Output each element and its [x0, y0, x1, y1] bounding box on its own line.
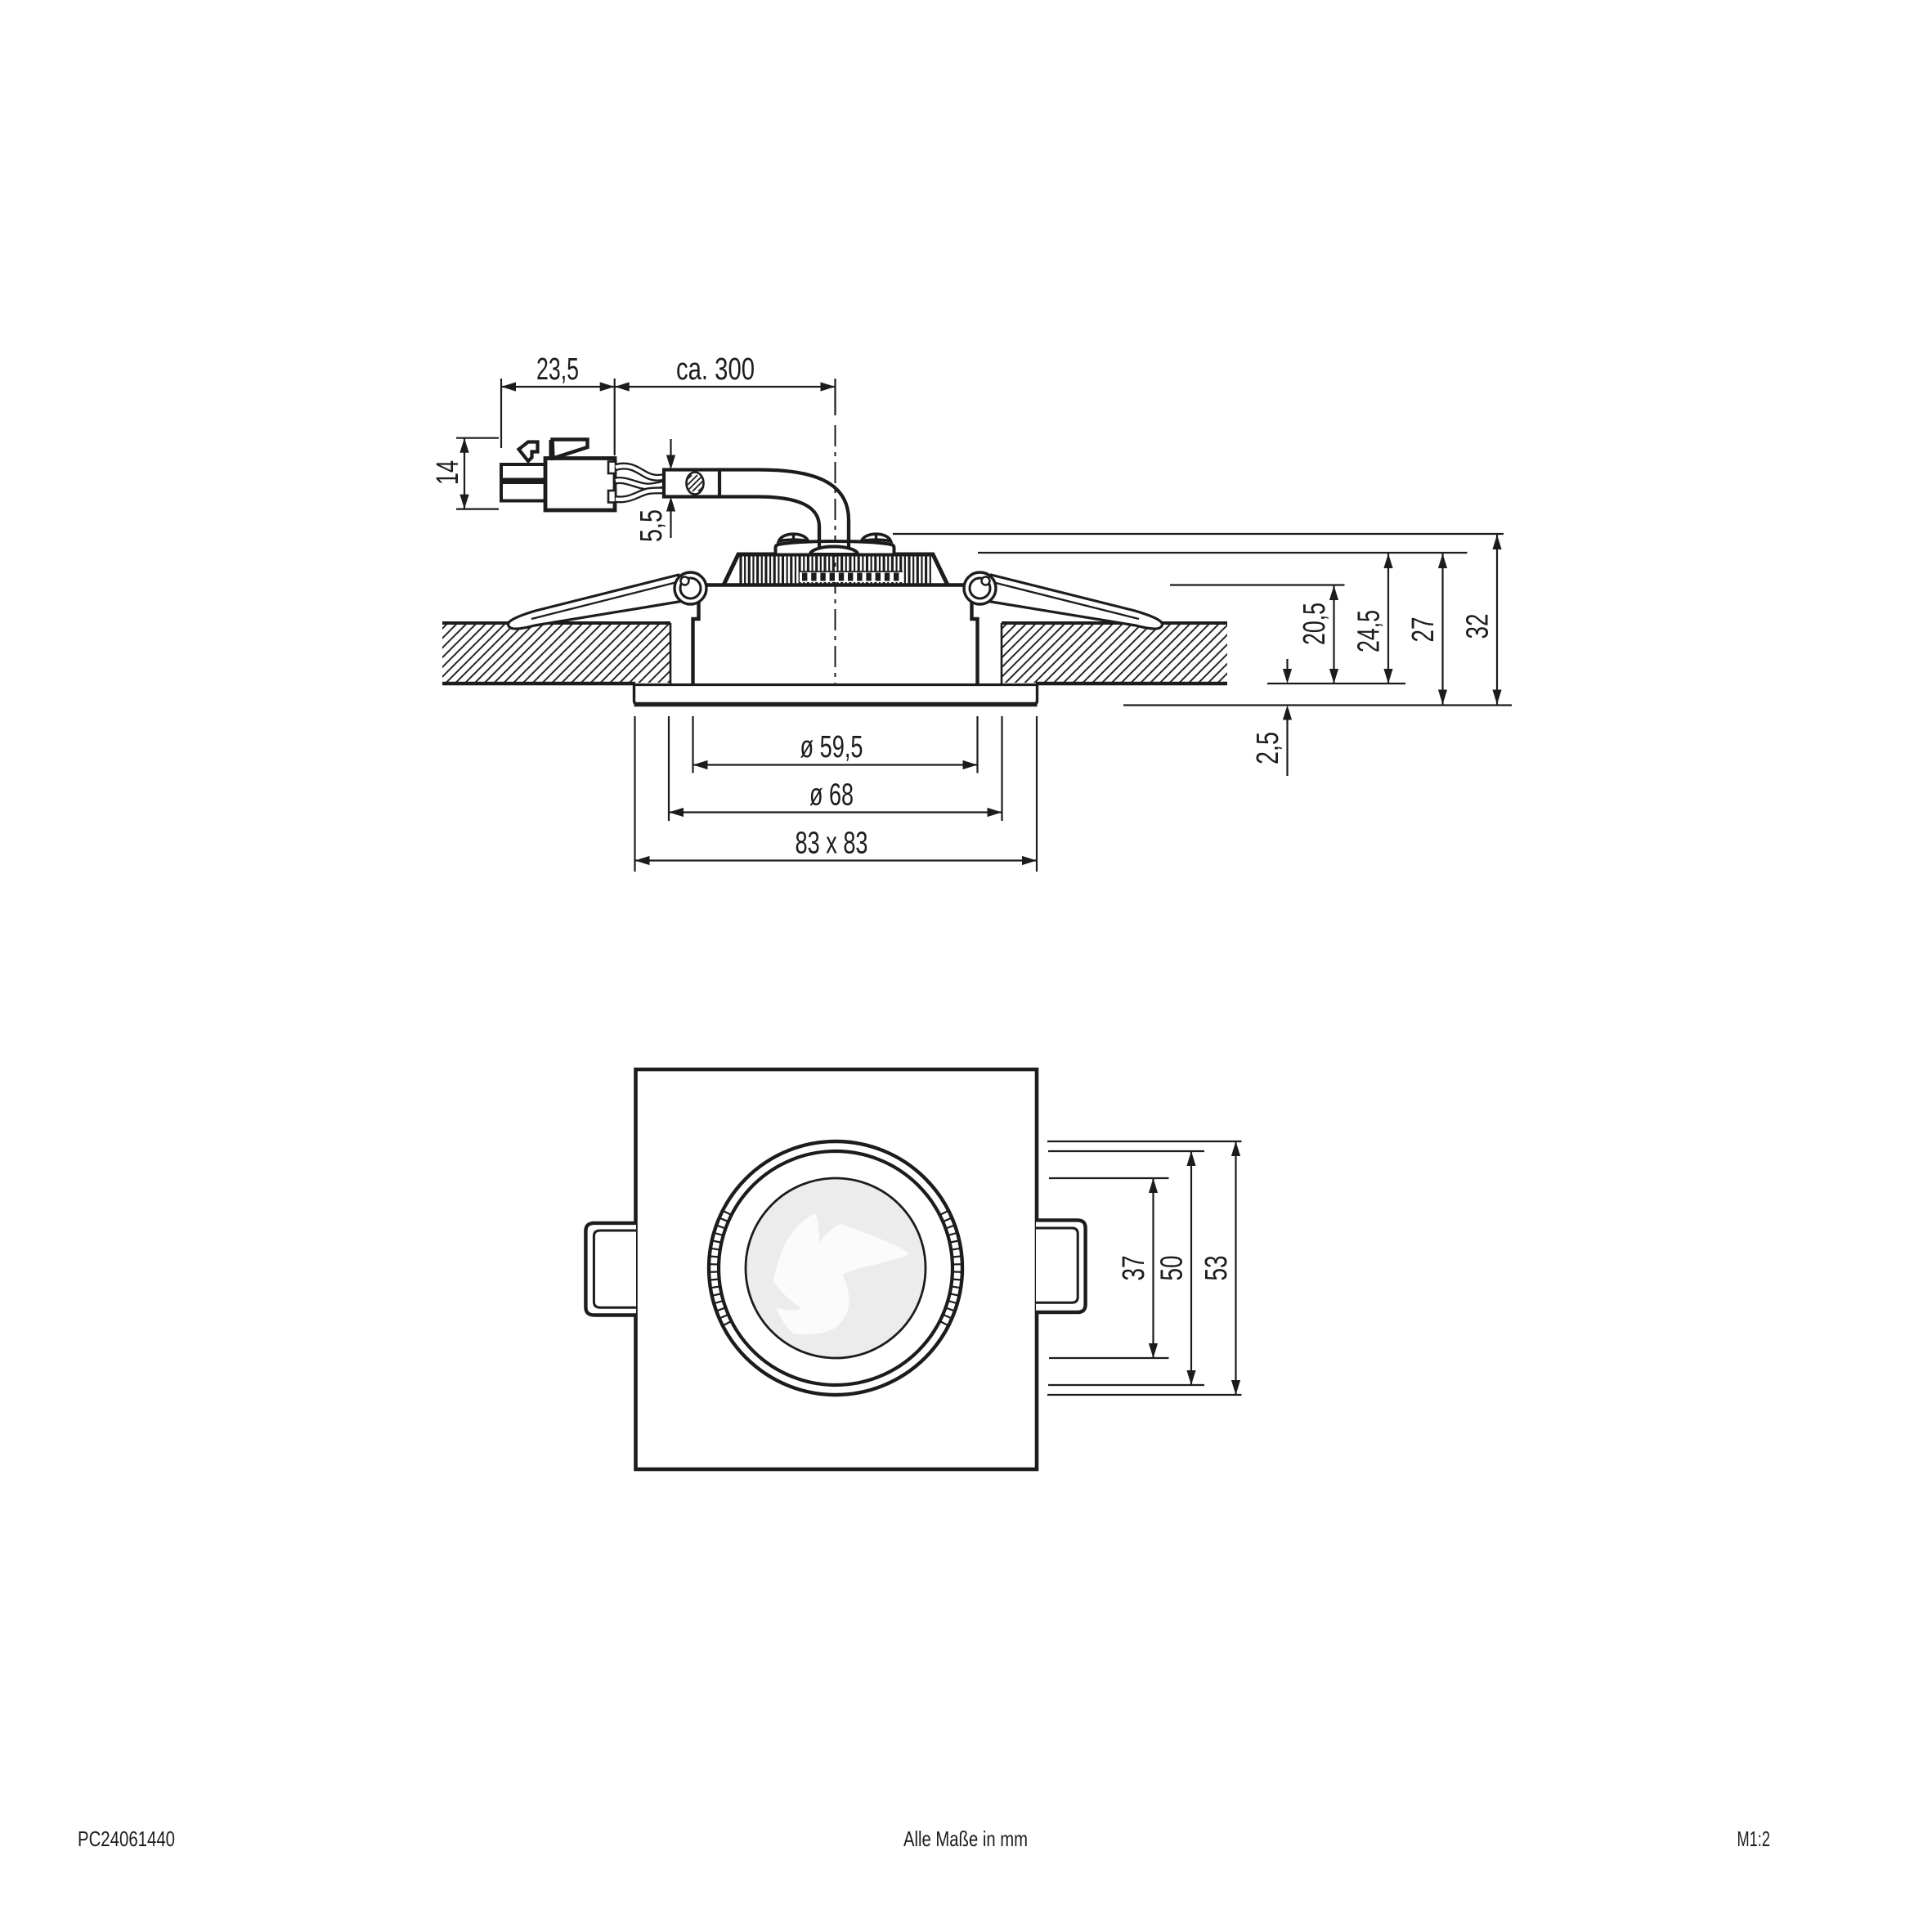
svg-text:2,5: 2,5 — [1251, 732, 1285, 764]
svg-text:50: 50 — [1155, 1256, 1190, 1281]
svg-text:24,5: 24,5 — [1352, 610, 1387, 652]
svg-text:83 x 83: 83 x 83 — [796, 827, 868, 861]
svg-text:23,5: 23,5 — [536, 352, 579, 387]
svg-text:20,5: 20,5 — [1298, 603, 1332, 645]
svg-text:37: 37 — [1117, 1256, 1151, 1281]
svg-text:53: 53 — [1199, 1256, 1234, 1281]
svg-text:Alle Maße in mm: Alle Maße in mm — [903, 1827, 1028, 1851]
svg-text:27: 27 — [1406, 617, 1441, 643]
svg-text:14: 14 — [431, 460, 465, 485]
svg-text:PC24061440: PC24061440 — [78, 1827, 175, 1851]
svg-text:ø 68: ø 68 — [809, 778, 854, 813]
svg-text:5,5: 5,5 — [634, 509, 669, 542]
svg-text:ø 59,5: ø 59,5 — [800, 730, 863, 764]
svg-text:ca. 300: ca. 300 — [676, 352, 755, 387]
svg-text:32: 32 — [1461, 614, 1495, 639]
svg-text:M1:2: M1:2 — [1737, 1827, 1771, 1851]
